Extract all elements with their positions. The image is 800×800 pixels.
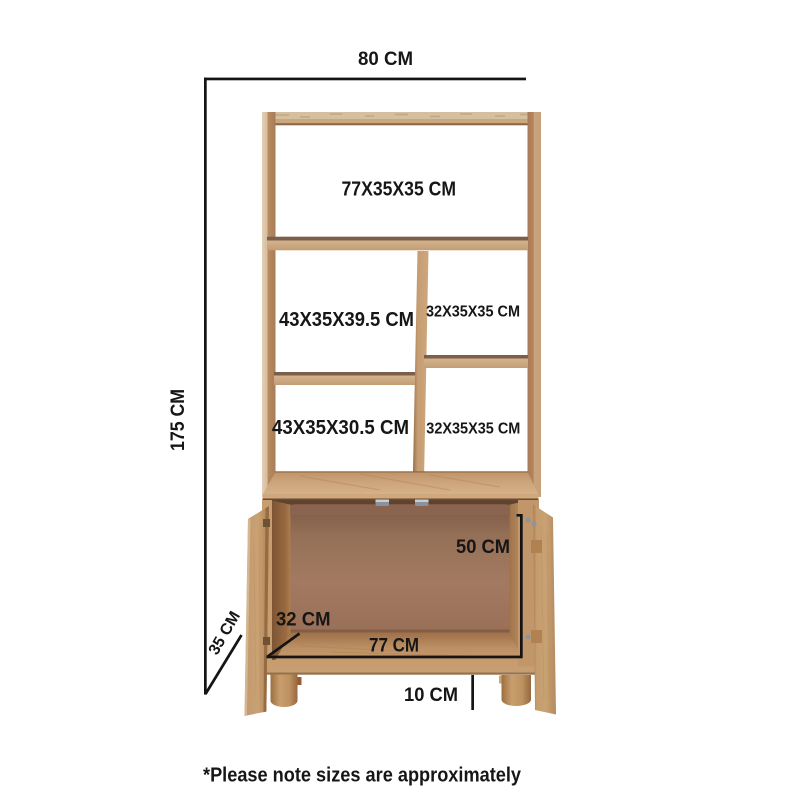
svg-text:32 CM: 32 CM — [276, 610, 331, 631]
svg-text:32X35X35 CM: 32X35X35 CM — [426, 304, 520, 321]
svg-text:43X35X39.5 CM: 43X35X39.5 CM — [279, 309, 414, 331]
svg-text:32X35X35 CM: 32X35X35 CM — [426, 421, 520, 438]
svg-text:43X35X30.5 CM: 43X35X30.5 CM — [272, 417, 409, 439]
svg-text:50 CM: 50 CM — [456, 537, 510, 558]
svg-text:10 CM: 10 CM — [404, 685, 458, 706]
svg-text:77X35X35 CM: 77X35X35 CM — [342, 179, 457, 201]
svg-text:77 CM: 77 CM — [369, 636, 419, 657]
svg-text:*Please note sizes are approxi: *Please note sizes are approximately — [203, 765, 522, 787]
svg-text:80 CM: 80 CM — [358, 49, 413, 70]
svg-text:175 CM: 175 CM — [168, 389, 189, 451]
